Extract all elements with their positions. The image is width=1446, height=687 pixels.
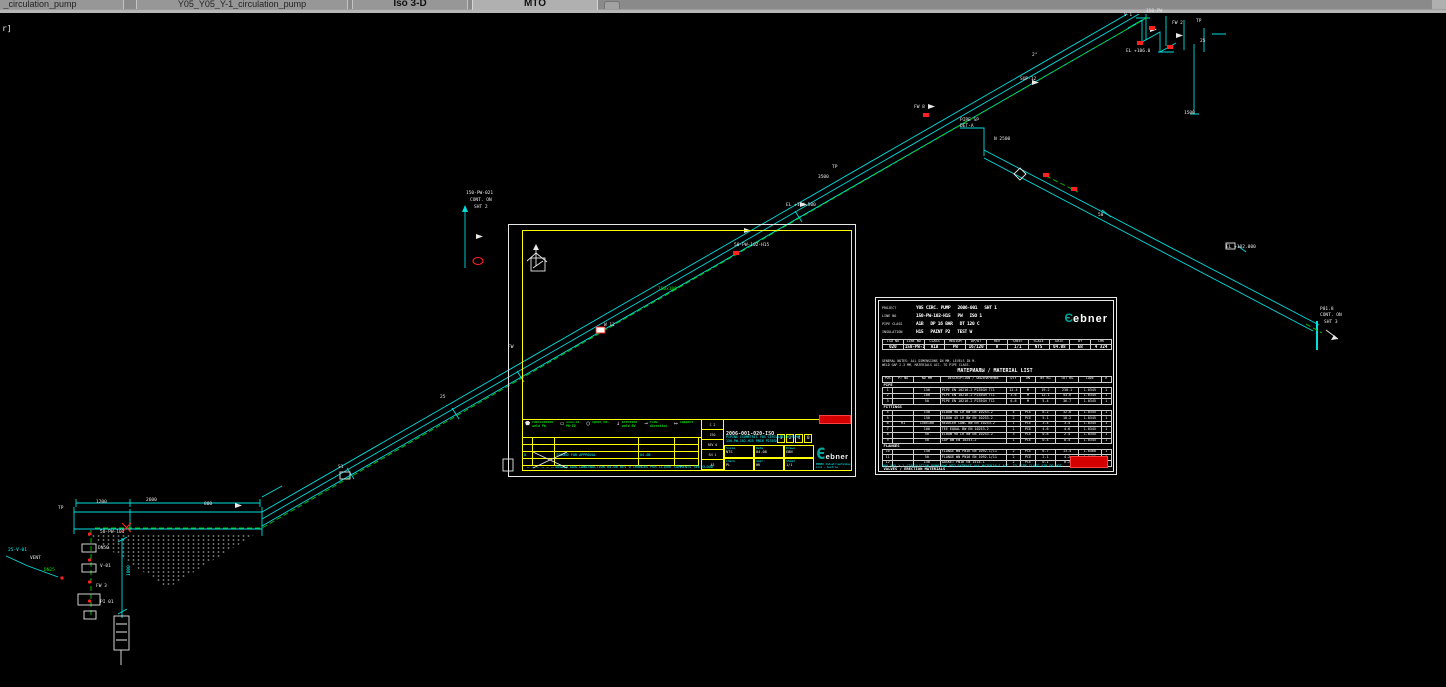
pipe-annotation: FW 3	[96, 585, 107, 590]
pipe-annotation: 1500	[1184, 112, 1195, 117]
pipe-annotation: FW 8	[914, 106, 925, 111]
pipe-annotation: 800	[204, 503, 212, 508]
pipe-annotation: SHT 2	[474, 206, 488, 211]
pipe-annotation: 1800	[128, 565, 133, 576]
pipe-annotation: 25	[1200, 40, 1205, 45]
pipe-annotation: W 12	[604, 324, 615, 329]
pipe-annotation: V 1	[1124, 14, 1132, 19]
pipe-annotation: 1200	[96, 501, 107, 506]
cad-application-window: _circulation_pumpY05_Y05_Y-1_circulation…	[0, 0, 1446, 687]
pipe-annotation: EL +104.500	[786, 204, 816, 209]
drawing-tab-bar: _circulation_pumpY05_Y05_Y-1_circulation…	[0, 0, 1446, 13]
pipe-annotation: SHT 3	[1324, 321, 1338, 326]
pipe-annotation: 2°	[1032, 54, 1037, 59]
pipe-annotation: 25-V-01	[8, 549, 27, 554]
pipe-annotation: 150-PW	[1146, 10, 1162, 15]
pipe-annotation: DET-A	[960, 125, 974, 130]
tab-Iso 3-D[interactable]: Iso 3-D	[352, 0, 468, 10]
tab-Y05_Y05_Y-1_circulation_pump[interactable]: Y05_Y05_Y-1_circulation_pump	[136, 0, 348, 10]
pipe-annotation: TP	[1196, 20, 1201, 25]
pipe-annotation: 50	[1098, 214, 1103, 219]
pipe-annotation: 25	[440, 396, 445, 401]
pipe-annotation: 50-PW-102-H15	[734, 244, 769, 249]
pipe-annotation: S1	[338, 466, 343, 471]
pipe-annotation: V-01	[100, 565, 111, 570]
pipe-annotation: N 2500	[994, 138, 1010, 143]
pipe-annotation: 2600	[146, 499, 157, 504]
pipe-annotation: FW	[508, 346, 513, 351]
pipe-annotation: r]	[2, 25, 12, 34]
annotation-layer: r]25-V-01VENTDN25TP1200260080050-PW-101D…	[0, 14, 1446, 687]
drawing-canvas[interactable]: r]25-V-01VENTDN25TP1200260080050-PW-101D…	[0, 14, 1446, 687]
pipe-annotation: VENT	[30, 557, 41, 562]
pipe-annotation: 50-PW-101	[100, 531, 124, 536]
new-tab-button[interactable]	[604, 1, 620, 13]
scrollbar-corner	[1431, 0, 1446, 11]
pipe-annotation: 3500	[818, 176, 829, 181]
pipe-annotation: FW 2	[1172, 22, 1183, 27]
pipe-annotation: 150-PW-021	[466, 192, 493, 197]
pipe-annotation: EL +102.000	[1226, 246, 1256, 251]
pipe-annotation: EL +106.0	[1126, 50, 1150, 55]
pipe-annotation: DN50	[98, 547, 109, 552]
pipe-annotation: PI 01	[100, 601, 114, 606]
tab-MTO[interactable]: MTO	[472, 0, 598, 10]
tab-_circulation_pump[interactable]: _circulation_pump	[0, 0, 124, 10]
pipe-annotation: TP	[832, 166, 837, 171]
pipe-annotation: TP	[58, 507, 63, 512]
pipe-annotation: CONT. ON	[470, 199, 492, 204]
pipe-annotation: CONT. ON	[1320, 314, 1342, 319]
pipe-annotation: 150x100	[658, 288, 677, 293]
pipe-annotation: DN25	[44, 569, 55, 574]
pipe-annotation: SUP-12	[1020, 78, 1036, 83]
